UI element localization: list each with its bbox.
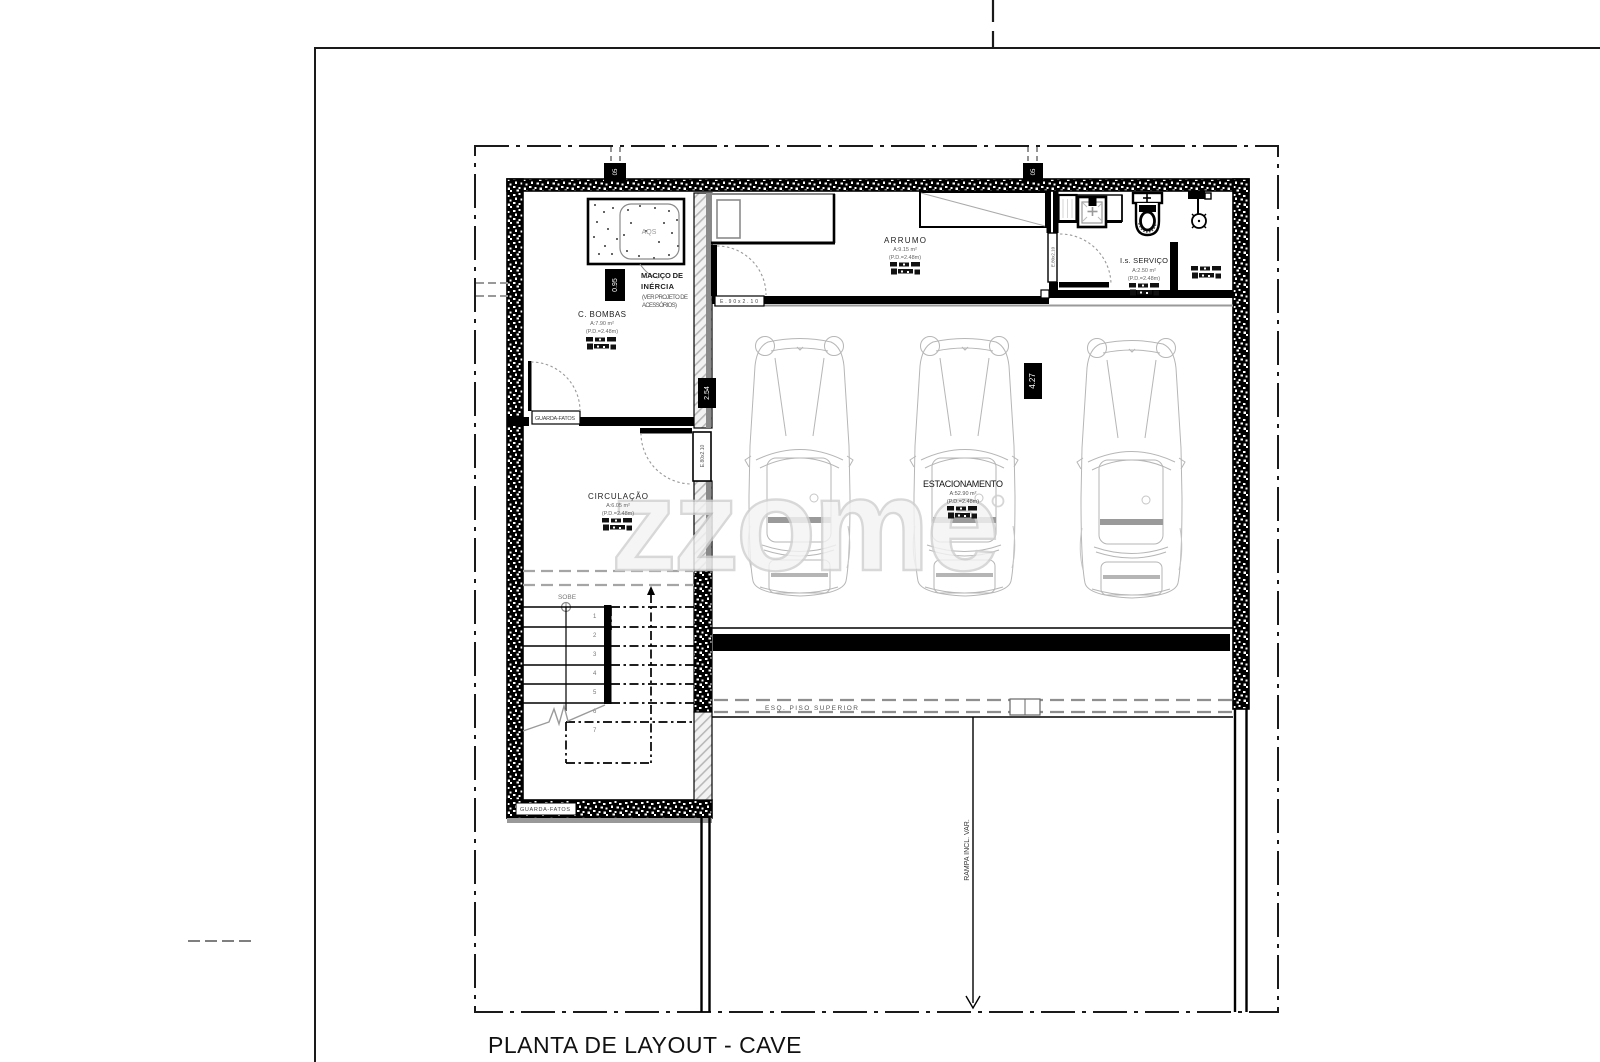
svg-text:MACIÇO DE: MACIÇO DE — [641, 271, 683, 280]
svg-text:A:7.90 m²: A:7.90 m² — [590, 321, 614, 327]
svg-text:(P.D.=2.48m): (P.D.=2.48m) — [602, 511, 634, 517]
svg-text:ESQ. PISO SUPERIOR: ESQ. PISO SUPERIOR — [765, 705, 858, 712]
svg-text:PLANTA DE LAYOUT - CAVE: PLANTA DE LAYOUT - CAVE — [488, 1032, 802, 1058]
svg-text:(P.D.=2.48m): (P.D.=2.48m) — [586, 329, 618, 335]
svg-text:GUARDA-FATOS: GUARDA-FATOS — [535, 416, 575, 422]
svg-text:(VER PROJETO DE: (VER PROJETO DE — [642, 295, 688, 301]
svg-text:05: 05 — [1031, 168, 1037, 175]
svg-text:(P.D.=2.48m): (P.D.=2.48m) — [889, 255, 921, 261]
svg-text:ESTACIONAMENTO: ESTACIONAMENTO — [923, 479, 1003, 489]
svg-text:2.54: 2.54 — [704, 386, 711, 400]
svg-text:(P.D.=2.48m): (P.D.=2.48m) — [947, 499, 979, 505]
svg-text:ACESSÓRIOS): ACESSÓRIOS) — [642, 302, 677, 309]
svg-text:E.90x2.10: E.90x2.10 — [720, 299, 758, 305]
svg-text:CIRCULAÇÃO: CIRCULAÇÃO — [588, 492, 648, 501]
svg-text:4.27: 4.27 — [1028, 373, 1037, 389]
svg-text:GUARDA-FATOS: GUARDA-FATOS — [520, 807, 570, 813]
svg-text:zzome: zzome — [611, 451, 996, 598]
svg-text:AQS: AQS — [642, 229, 657, 236]
svg-text:E.80x2.10: E.80x2.10 — [1051, 246, 1056, 267]
svg-text:05: 05 — [613, 168, 619, 175]
svg-text:A:52.90 m²: A:52.90 m² — [950, 491, 977, 497]
svg-text:0.95: 0.95 — [612, 278, 619, 292]
svg-text:I.s. SERVIÇO: I.s. SERVIÇO — [1120, 256, 1168, 265]
svg-text:(P.D.=2.48m): (P.D.=2.48m) — [1128, 276, 1160, 282]
svg-text:ARRUMO: ARRUMO — [884, 236, 926, 245]
svg-text:RAMPA INCL. VAR.: RAMPA INCL. VAR. — [964, 819, 971, 881]
svg-text:C. BOMBAS: C. BOMBAS — [578, 310, 626, 319]
svg-text:A:6.05 m²: A:6.05 m² — [606, 503, 630, 509]
svg-text:SOBE: SOBE — [558, 594, 577, 601]
svg-text:A:2.50 m²: A:2.50 m² — [1132, 268, 1156, 274]
svg-text:INÉRCIA: INÉRCIA — [641, 282, 675, 291]
svg-text:A:9.15 m²: A:9.15 m² — [893, 247, 917, 253]
